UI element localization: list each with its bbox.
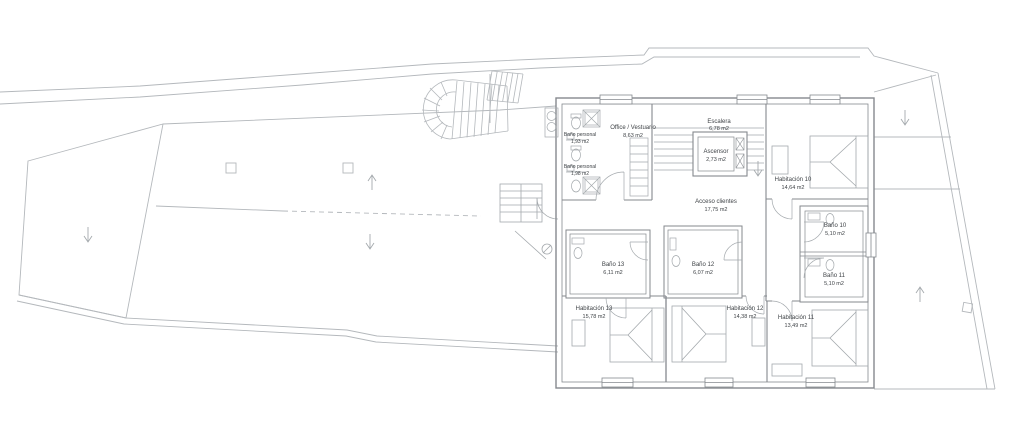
room-label-acceso-clientes: Acceso clientes 17,75 m2: [695, 199, 737, 213]
floor-plan-page: Office / Vestuario 8,63 m2 Baño personal…: [0, 0, 1024, 421]
room-area: 15,78 m2: [583, 314, 606, 320]
right-terrace-edges: [874, 75, 991, 389]
site-bottom-lines: [17, 295, 558, 352]
mid-terrace-top-edge: [163, 74, 556, 124]
room-name: Habitación 11: [778, 315, 815, 321]
room-name: Escalera: [707, 119, 731, 125]
room-area: 14,38 m2: [734, 314, 757, 320]
room-name: Habitación 13: [576, 306, 613, 312]
room-area: 14,64 m2: [782, 185, 805, 191]
room-label-bano-11: Baño 11 5,10 m2: [823, 273, 846, 287]
room-name: Acceso clientes: [695, 199, 737, 205]
up-arrow-icon: [368, 175, 376, 190]
up-arrow-icon: [916, 287, 924, 302]
room-area: 5,10 m2: [825, 231, 845, 237]
slant-wall-box: [962, 302, 972, 312]
window-top-1: [600, 95, 632, 104]
column-marker: [343, 163, 353, 173]
door-hab10: [772, 199, 792, 219]
site-top-outer-line: [0, 48, 938, 92]
entrance-stair: [500, 184, 558, 259]
room-area: 2,73 m2: [706, 157, 726, 163]
room-label-office-vestuario: Office / Vestuario 8,63 m2: [610, 125, 656, 139]
door-bano12: [724, 242, 742, 260]
down-arrow-icon: [84, 227, 92, 242]
down-arrow-icon: [366, 234, 374, 249]
room-label-bano-personal-2: Baño personal 1,98 m2: [564, 164, 596, 177]
room-name: Baño 11: [823, 273, 846, 279]
room-area: 1,98 m2: [571, 171, 589, 177]
room-label-escalera: Escalera 6,78 m2: [707, 119, 731, 132]
room-name: Habitación 12: [727, 306, 764, 312]
room-label-bano-12: Baño 12 6,07 m2: [692, 262, 715, 276]
room-label-bano-personal-1: Baño personal 1,93 m2: [564, 132, 596, 145]
wardrobe-habitacion-10: [772, 146, 788, 174]
ramp-stair: [487, 71, 523, 103]
room-area: 6,07 m2: [693, 270, 713, 276]
door-bano10: [804, 222, 824, 242]
column-marker: [226, 163, 236, 173]
window-top-3: [810, 95, 840, 104]
room-area: 5,10 m2: [824, 281, 844, 287]
mid-terrace-joint-line: [156, 206, 283, 211]
window-bottom-2: [705, 378, 733, 387]
mid-terrace-dashed-line: [283, 211, 481, 216]
room-name: Baño 10: [824, 223, 847, 229]
room-area: 6,11 m2: [603, 270, 622, 276]
room-label-bano-13: Baño 13 6,11 m2: [602, 262, 625, 276]
room-area: 17,75 m2: [705, 207, 728, 213]
room-area: 6,78 m2: [709, 126, 729, 132]
room-name: Baño personal: [564, 132, 596, 138]
room-name: Baño 12: [692, 262, 715, 268]
floor-plan-canvas: Office / Vestuario 8,63 m2 Baño personal…: [0, 0, 1024, 421]
bano-12-fixtures: [670, 238, 680, 267]
down-arrow-icon: [901, 110, 909, 125]
room-area: 13,49 m2: [785, 323, 808, 329]
window-bottom-1: [602, 378, 633, 387]
door-bano13: [630, 242, 648, 260]
nightstand-habitacion-12: [752, 318, 765, 346]
room-label-habitacion-13: Habitación 13 15,78 m2: [576, 306, 613, 320]
curved-stair: [422, 80, 508, 139]
room-name: Ascensor: [703, 149, 728, 155]
toilet-2: [571, 146, 581, 161]
office-fixtures: [545, 108, 648, 196]
room-name: Baño personal: [564, 164, 596, 170]
room-name: Office / Vestuario: [610, 125, 656, 131]
site-right-slant: [931, 73, 995, 389]
door-bano11: [804, 258, 824, 278]
window-top-2: [737, 95, 767, 104]
entrance-door-arc: [537, 198, 558, 219]
room-label-habitacion-10: Habitación 10 14,64 m2: [775, 177, 812, 191]
left-terrace-outline: [19, 124, 163, 318]
window-right-1: [866, 233, 876, 257]
window-bottom-3: [806, 378, 835, 387]
room-area: 1,93 m2: [571, 139, 589, 145]
bano-11-fixtures: [808, 259, 834, 271]
bano-13-fixtures: [572, 238, 584, 259]
room-area: 8,63 m2: [623, 133, 643, 139]
room-label-habitacion-11: Habitación 11 13,49 m2: [778, 315, 815, 329]
room-label-bano-10: Baño 10 5,10 m2: [824, 223, 847, 237]
toilet-1: [571, 114, 581, 129]
direction-arrows: [84, 110, 924, 302]
shower-1: [583, 110, 600, 127]
toilet-3: [572, 180, 581, 192]
room-name: Habitación 10: [775, 177, 812, 183]
nightstand-habitacion-11: [772, 364, 802, 376]
nightstand-habitacion-13: [572, 320, 585, 346]
office-shelf: [630, 138, 648, 196]
personal-bath-fixtures: [566, 110, 600, 194]
room-name: Baño 13: [602, 262, 625, 268]
